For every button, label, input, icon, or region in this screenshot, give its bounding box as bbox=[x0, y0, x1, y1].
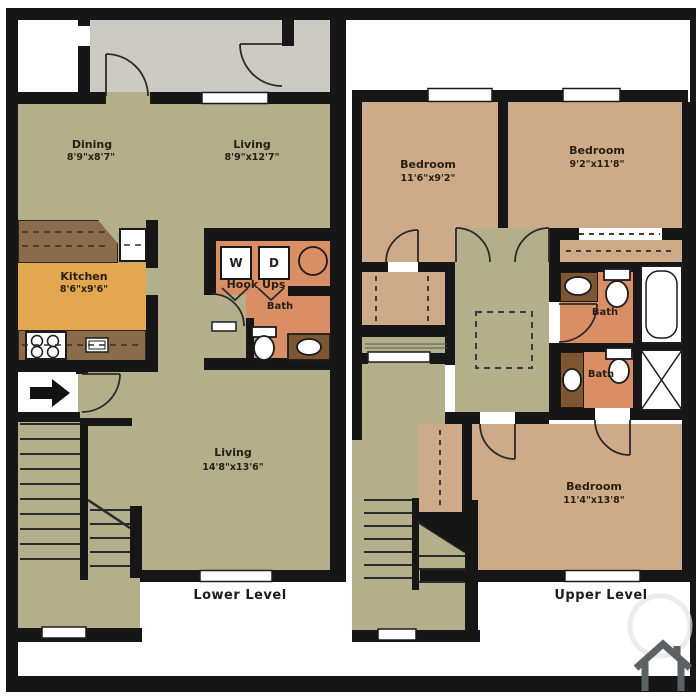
door-hall-right bbox=[240, 44, 282, 86]
bedroom3-dims: 11'4"x13'8" bbox=[563, 496, 625, 506]
window-living bbox=[200, 571, 272, 582]
linen-shelves bbox=[365, 344, 447, 348]
hookups-label: Hook Ups bbox=[227, 279, 286, 290]
dining-label: Dining bbox=[72, 139, 112, 150]
lower-level-title: Lower Level bbox=[193, 589, 286, 602]
bath1-label: Bath bbox=[592, 308, 618, 318]
living-upper-label: Living bbox=[233, 139, 270, 150]
bath1-toilet-bowl bbox=[606, 281, 628, 307]
upper-bath-fixtures bbox=[563, 266, 682, 410]
living-lower-dims: 14'8"x13'6" bbox=[202, 463, 264, 473]
windows bbox=[42, 89, 640, 641]
water-heater bbox=[299, 247, 327, 275]
door-bedroom2 bbox=[515, 228, 549, 262]
floorplan-canvas: W D bbox=[0, 0, 700, 700]
doors bbox=[82, 44, 630, 459]
door-bedroom3 bbox=[480, 424, 515, 459]
stairs-lower bbox=[20, 424, 130, 566]
bedroom2-label: Bedroom bbox=[569, 145, 625, 156]
door-entry bbox=[82, 374, 120, 412]
bath2-toilet-tank bbox=[606, 348, 632, 359]
living-lower-label: Living bbox=[214, 447, 251, 458]
attic-access bbox=[476, 312, 532, 368]
bath2-label: Bath bbox=[588, 370, 614, 380]
bath2-sink bbox=[563, 369, 581, 391]
bath1-toilet-tank bbox=[604, 269, 630, 280]
bedroom1-label: Bedroom bbox=[400, 159, 456, 170]
window-bedroom3 bbox=[565, 571, 640, 582]
toilet-bowl-lower bbox=[254, 336, 274, 360]
dining-dims: 8'9"x8'7" bbox=[67, 153, 115, 163]
door-bedroom1-closet bbox=[386, 230, 418, 262]
bath-closet-door-leaf bbox=[212, 322, 236, 331]
closet-dashes bbox=[376, 234, 676, 508]
window-bedroom2 bbox=[563, 89, 620, 102]
window-hall bbox=[202, 93, 268, 104]
door-bath2 bbox=[595, 420, 630, 455]
door-hall-left bbox=[106, 54, 148, 96]
window-upper-stairs bbox=[378, 629, 416, 640]
bedroom1-closet-rods bbox=[376, 276, 428, 326]
bath-lower-label: Bath bbox=[267, 302, 293, 312]
bedroom3-label: Bedroom bbox=[566, 481, 622, 492]
door-bedroom1 bbox=[456, 228, 490, 262]
sink-lower bbox=[297, 339, 321, 355]
living-upper-dims: 8'9"x12'7" bbox=[225, 153, 280, 163]
bedroom2-dims: 9'2"x11'8" bbox=[570, 160, 625, 170]
door-bath-closet bbox=[212, 294, 244, 326]
bath1-sink bbox=[565, 277, 591, 295]
window-lower-stairs bbox=[42, 627, 86, 638]
entry-arrow-icon bbox=[30, 379, 70, 407]
kitchen-dims: 8'6"x9'6" bbox=[60, 285, 108, 295]
window-bedroom1 bbox=[428, 89, 492, 102]
upper-level-title: Upper Level bbox=[554, 589, 647, 602]
kitchen-label: Kitchen bbox=[60, 271, 107, 282]
bedroom1-dims: 11'6"x9'2" bbox=[401, 174, 456, 184]
stair-railing bbox=[368, 352, 430, 362]
